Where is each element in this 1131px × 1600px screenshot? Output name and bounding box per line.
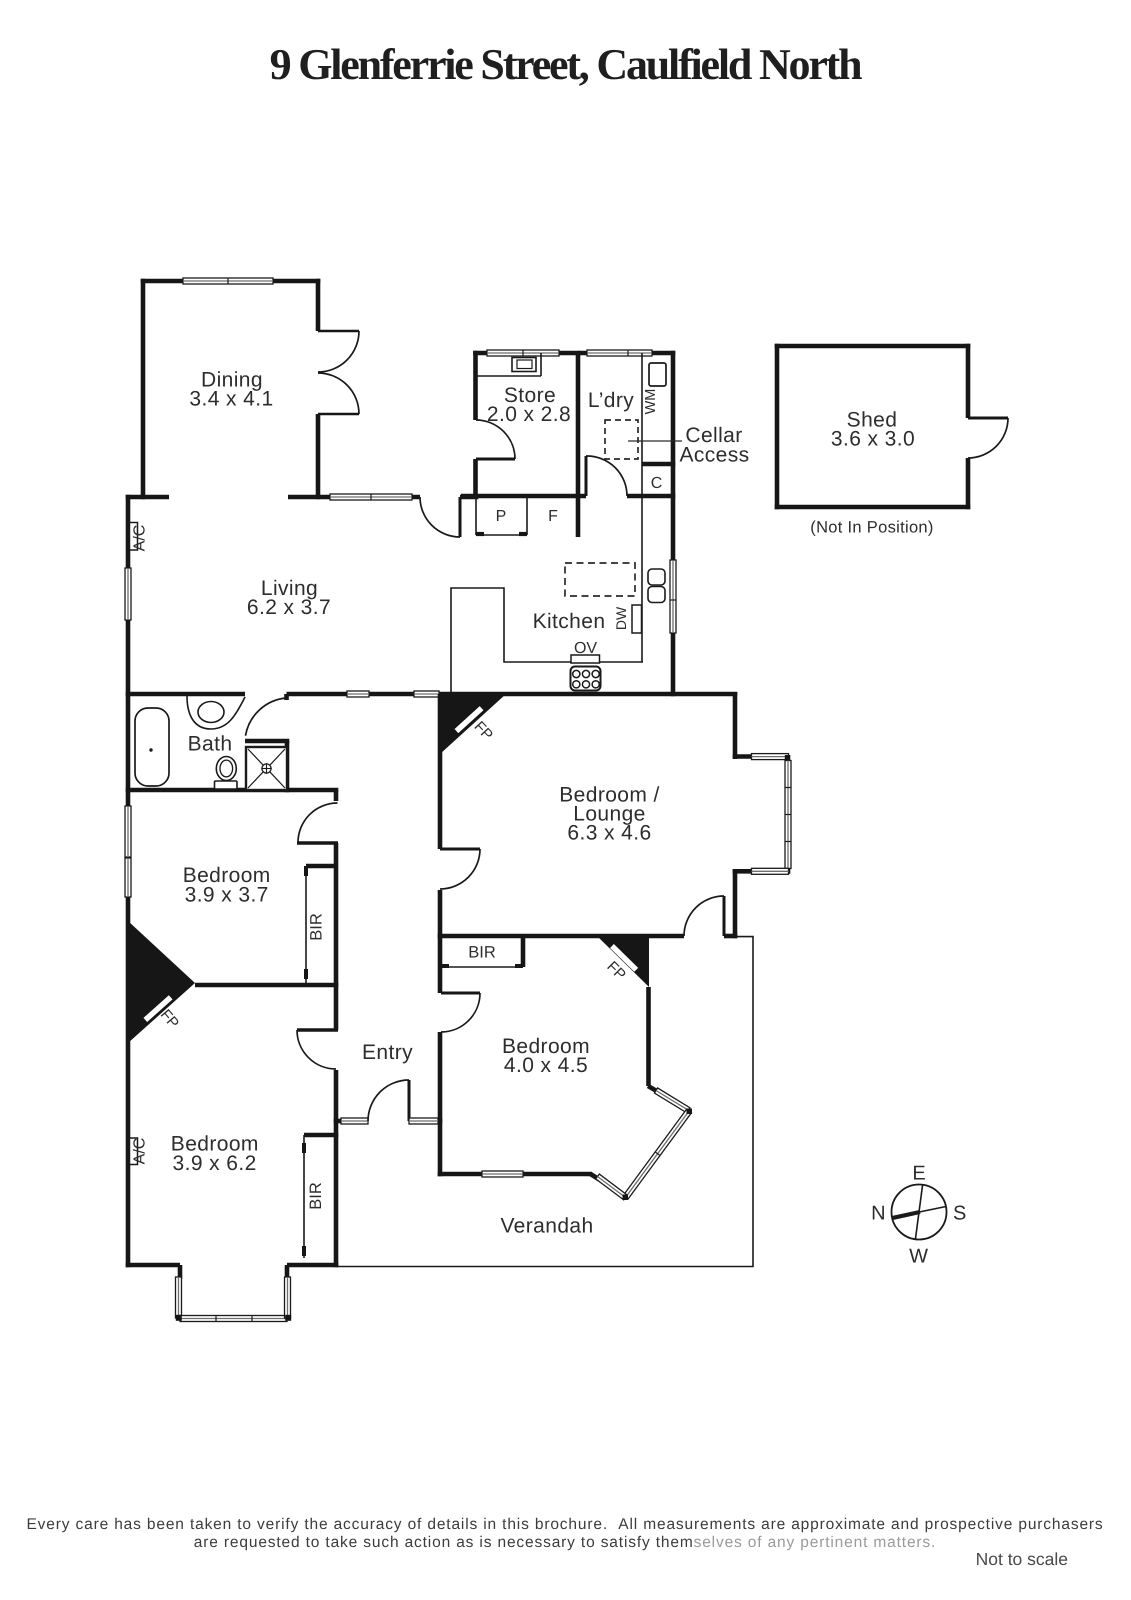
svg-text:BIR: BIR [308, 913, 326, 941]
svg-text:Not to scale: Not to scale [976, 1549, 1068, 1569]
svg-text:2.0 x 2.8: 2.0 x 2.8 [487, 403, 571, 426]
svg-text:3.9 x 6.2: 3.9 x 6.2 [173, 1152, 257, 1175]
svg-text:BIR: BIR [307, 1182, 325, 1210]
svg-text:N: N [871, 1202, 885, 1224]
svg-text:WM: WM [643, 389, 659, 415]
svg-text:F: F [548, 508, 558, 525]
svg-text:3.9 x 3.7: 3.9 x 3.7 [185, 884, 269, 907]
svg-text:6.3 x 4.6: 6.3 x 4.6 [567, 822, 651, 845]
svg-text:L’dry: L’dry [588, 389, 634, 412]
svg-text:E: E [912, 1163, 925, 1185]
svg-text:6.2 x 3.7: 6.2 x 3.7 [247, 596, 331, 619]
svg-text:Entry: Entry [362, 1041, 413, 1064]
svg-text:BIR: BIR [468, 944, 496, 962]
svg-text:A/C: A/C [132, 1138, 149, 1165]
svg-text:Verandah: Verandah [500, 1215, 593, 1238]
svg-text:S: S [953, 1202, 966, 1224]
svg-text:A/C: A/C [132, 525, 149, 552]
svg-text:9 Glenferrie Street, Caulfield: 9 Glenferrie Street, Caulfield North [270, 40, 863, 89]
svg-text:Every care has been taken to v: Every care has been taken to verify the … [26, 1516, 1103, 1533]
svg-text:4.0 x 4.5: 4.0 x 4.5 [504, 1054, 588, 1077]
svg-text:C: C [651, 475, 663, 492]
svg-text:Kitchen: Kitchen [533, 610, 606, 633]
svg-text:3.6 x 3.0: 3.6 x 3.0 [831, 428, 915, 451]
svg-text:Access: Access [679, 444, 749, 467]
svg-text:(Not In Position): (Not In Position) [810, 519, 933, 537]
svg-text:3.4 x 4.1: 3.4 x 4.1 [189, 388, 273, 411]
svg-text:P: P [496, 508, 507, 525]
svg-text:DW: DW [613, 606, 629, 630]
svg-text:Bath: Bath [188, 733, 233, 756]
svg-text:are requested to take such act: are requested to take such action as is … [194, 1534, 936, 1551]
svg-text:W: W [909, 1246, 928, 1268]
